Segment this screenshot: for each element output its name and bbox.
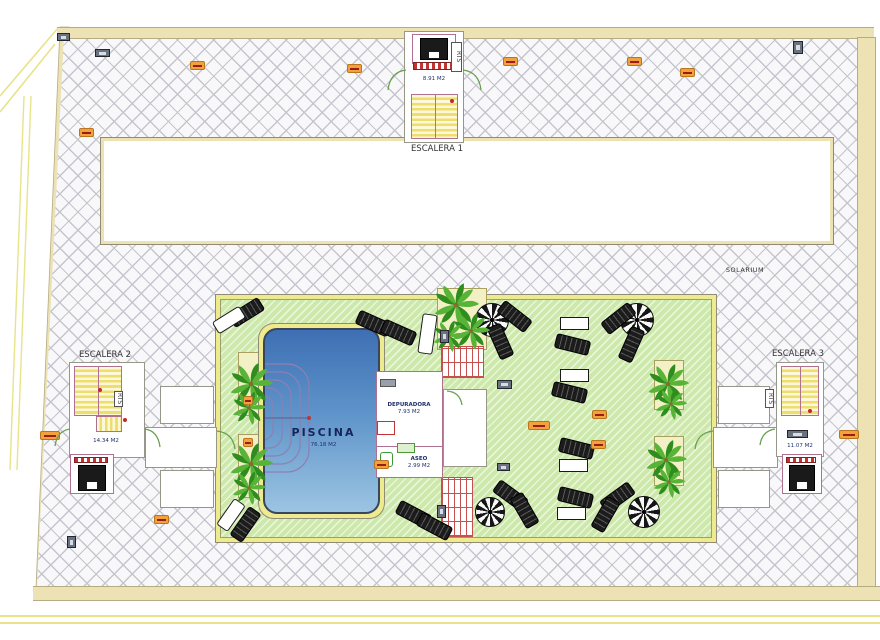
furniture-layer (0, 0, 880, 640)
dimension-tag (627, 57, 642, 66)
site-plan-canvas: ESCALERA 1 PISCIN (0, 0, 880, 640)
palm-tree (654, 387, 688, 421)
dimension-tag (503, 57, 518, 66)
sun-lounger-white (212, 306, 247, 335)
elevation-marker (95, 49, 110, 57)
dimension-tag (591, 440, 606, 449)
sun-lounger (550, 380, 588, 403)
palm-tree (432, 319, 466, 353)
parasol-umbrella (475, 497, 505, 527)
dimension-tag (374, 460, 389, 469)
sun-lounger (557, 436, 595, 459)
elevation-marker (67, 536, 76, 548)
dimension-tag (40, 431, 60, 440)
stair-direction-marker (450, 99, 454, 103)
elevation-marker (440, 330, 449, 343)
dimension-tag (592, 410, 607, 419)
parasol-umbrella (628, 496, 660, 528)
elevation-marker (497, 463, 510, 471)
elevation-marker (793, 41, 803, 54)
dimension-tag (79, 128, 94, 137)
side-table (559, 459, 588, 472)
elevation-marker (437, 505, 446, 518)
palm-tree (652, 465, 686, 499)
sun-lounger (617, 325, 645, 363)
sun-lounger (509, 491, 539, 529)
stair-direction-marker (123, 418, 127, 422)
dimension-tag (839, 430, 859, 439)
side-table (557, 507, 586, 520)
palm-tree (231, 470, 267, 506)
sun-lounger (379, 318, 417, 346)
sun-lounger (556, 485, 594, 508)
side-table (560, 317, 589, 330)
elevation-marker (787, 430, 808, 438)
dimension-tag (243, 438, 253, 447)
sun-lounger (415, 511, 453, 541)
elevation-marker (57, 33, 70, 41)
stair-direction-marker (808, 409, 812, 413)
dimension-tag (154, 515, 169, 524)
dimension-tag (347, 64, 362, 73)
stair-direction-marker (98, 388, 102, 392)
dimension-tag (190, 61, 205, 70)
elevation-marker (497, 380, 512, 389)
dimension-tag (528, 421, 550, 430)
sun-lounger (590, 495, 620, 533)
sun-lounger (553, 332, 591, 355)
dimension-tag (680, 68, 695, 77)
side-table (560, 369, 589, 382)
dimension-tag (243, 396, 253, 405)
